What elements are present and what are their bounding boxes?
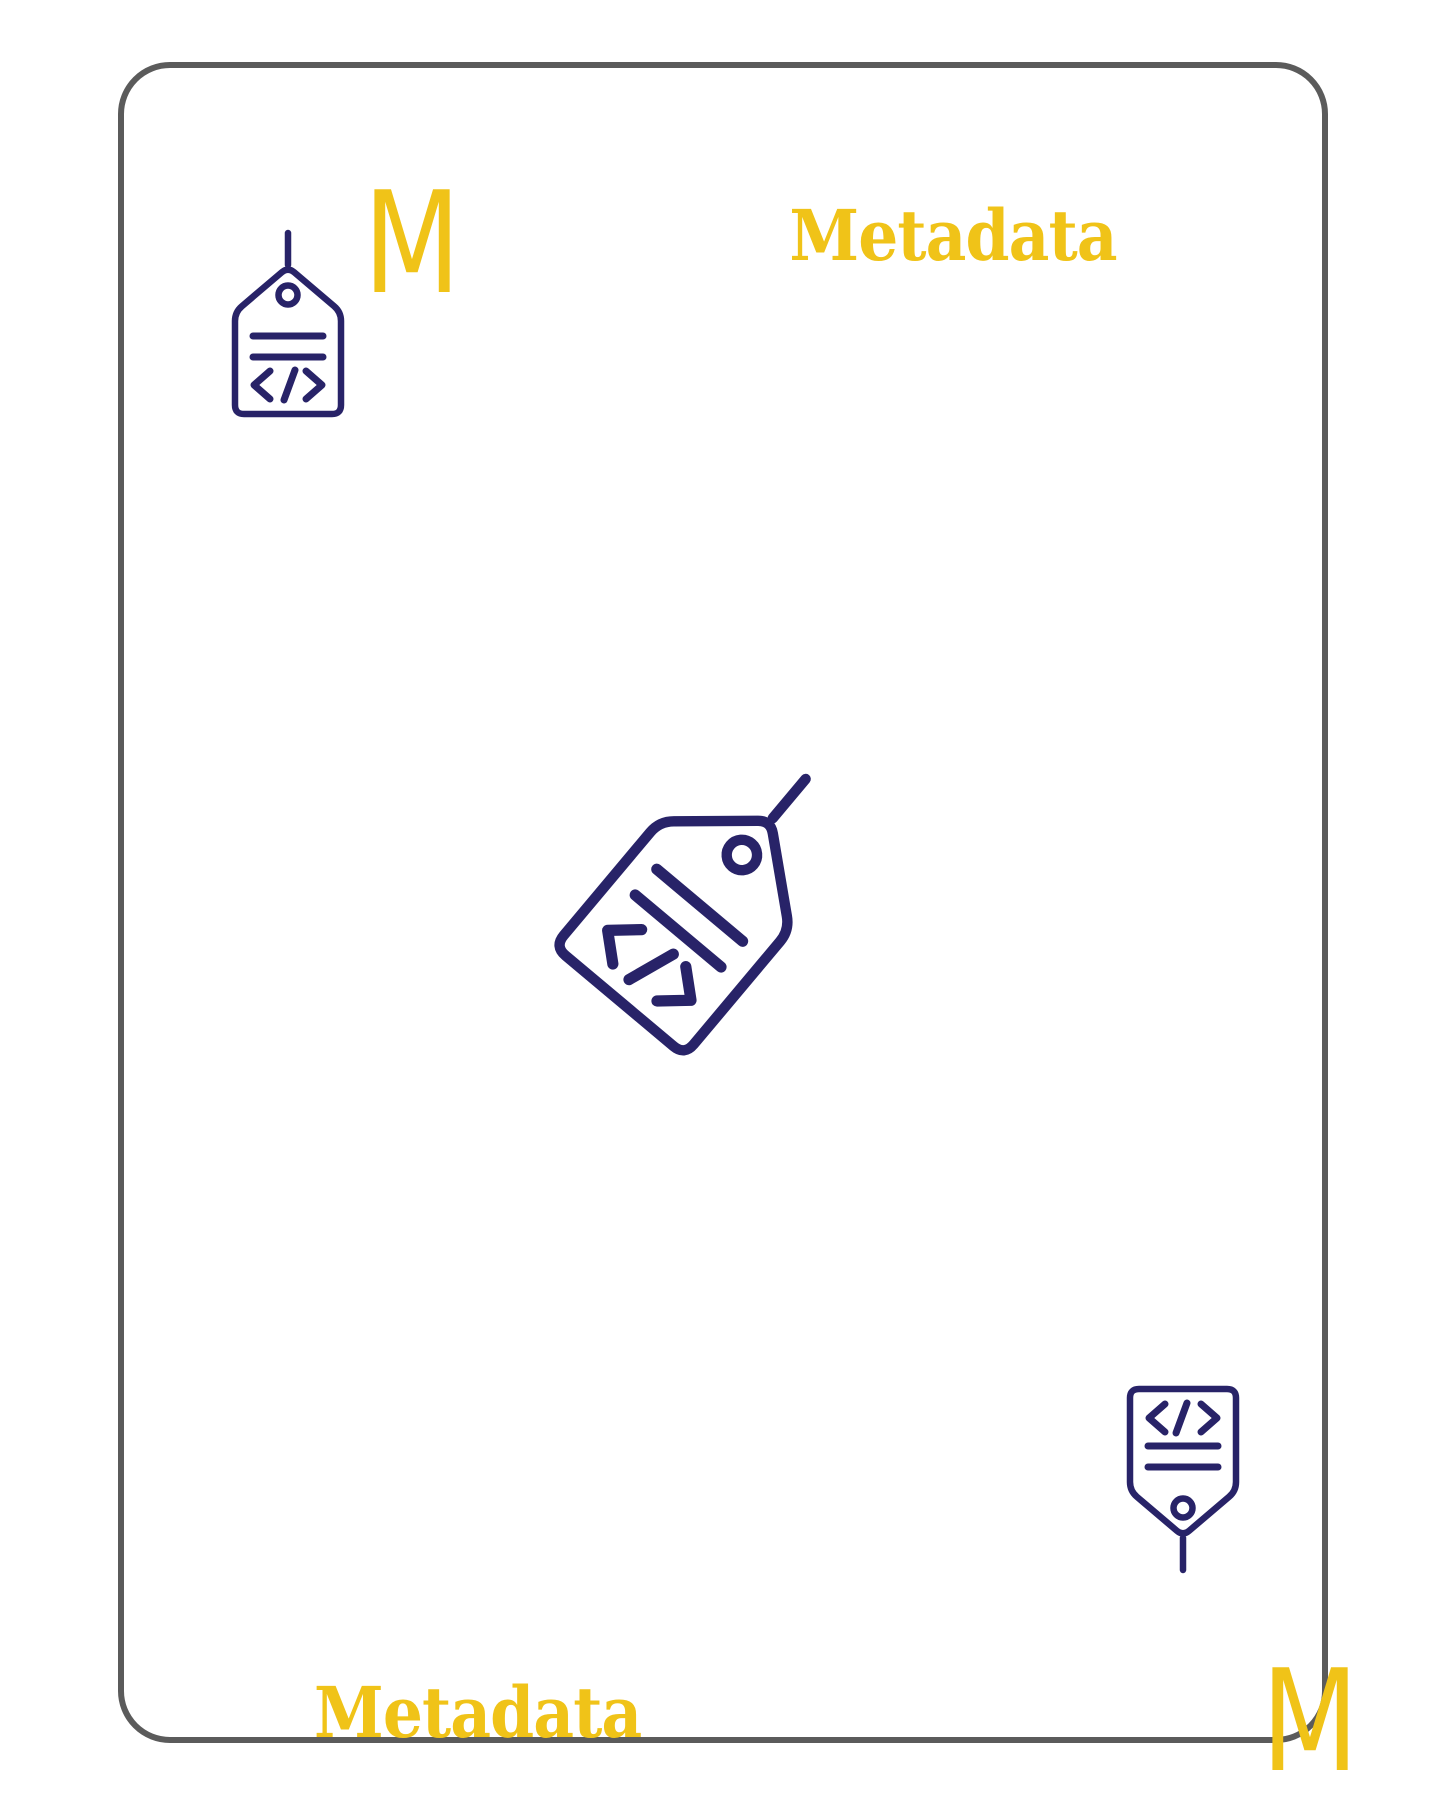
- rank-letter-top-left: M: [363, 174, 460, 315]
- card-title-bottom-left: Metadata: [314, 1678, 641, 1748]
- metadata-tag-icon-top-left: [232, 231, 344, 421]
- rank-letter-bottom-right: M: [1261, 1652, 1358, 1793]
- card-title-top-right: Metadata: [790, 201, 1117, 271]
- page: M Metadata Metadata M: [0, 0, 1445, 1806]
- metadata-tag-icon-bottom-right: [1127, 1382, 1239, 1572]
